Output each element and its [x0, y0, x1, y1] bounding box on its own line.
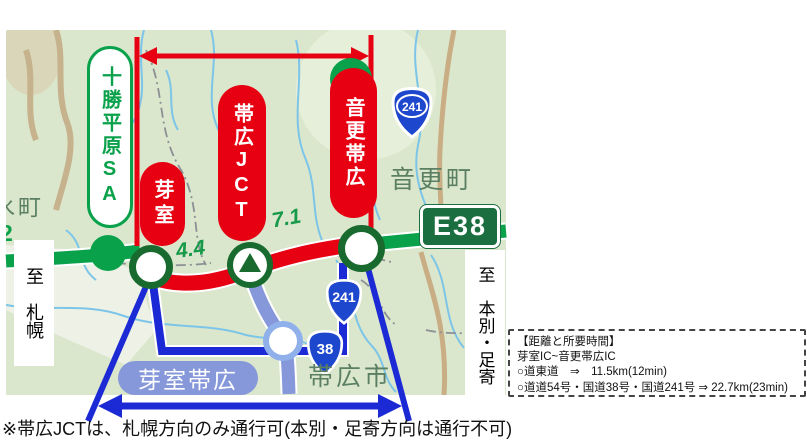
obihiro-jct-label: 帯広JCT	[228, 103, 257, 224]
route-241-large-number: 241	[402, 100, 422, 114]
memuro-ic-pill: 芽室	[140, 162, 185, 246]
e38-shield-label: E38	[433, 211, 487, 242]
info-box-title: 【距離と所要時間】	[517, 335, 797, 350]
info-box-expressway-route: ○道東道 ⇒ 11.5km(12min)	[517, 365, 797, 380]
distance-time-info-box: 【距離と所要時間】 芽室IC~音更帯広IC ○道東道 ⇒ 11.5km(12mi…	[508, 329, 806, 397]
route-241-shield-large: 241	[391, 87, 433, 139]
direction-honbetsu-ashoro-label: 至 本別・足寄	[473, 266, 498, 385]
obihiro-hiroo-ic-marker-icon	[263, 321, 303, 361]
otofuke-obihiro-ic-pill: 音更帯広	[330, 68, 377, 218]
e38-expressway-shield: E38	[420, 205, 500, 248]
otofuke-obihiro-ic-label: 音更帯広	[339, 97, 368, 189]
memuro-obihiro-area-pill: 芽室帯広	[118, 361, 258, 395]
route-241-shield-small: 241	[324, 279, 364, 325]
obihiro-jct-marker-icon	[227, 242, 273, 288]
tokachi-heigen-sa-label: 十勝平原SA	[96, 66, 125, 208]
route-241-small-number: 241	[332, 289, 356, 305]
partial-route-number: 2	[6, 220, 13, 247]
memuro-ic-label: 芽室	[148, 179, 177, 229]
distance-jct-otofuke: 7.1	[270, 205, 303, 234]
memuro-ic-marker-icon	[129, 245, 173, 289]
service-area-dot-icon	[90, 235, 126, 271]
info-box-local-route: ○道道54号・国道38号・国道241号 ⇒ 22.7km(23min)	[517, 381, 797, 396]
otofuke-obihiro-ic-marker-icon	[338, 225, 385, 272]
direction-box-sapporo: 至 札幌	[14, 240, 54, 366]
route-38-number: 38	[317, 341, 334, 358]
partial-town-label: 水町	[6, 188, 44, 222]
info-box-section: 芽室IC~音更帯広IC	[517, 350, 797, 365]
tokachi-heigen-sa-pill: 十勝平原SA	[87, 46, 133, 228]
obihiro-jct-pill: 帯広JCT	[218, 85, 266, 241]
distance-memuro-jct: 4.4	[174, 236, 206, 264]
direction-sapporo-label: 至 札幌	[21, 267, 47, 339]
memuro-obihiro-area-label: 芽室帯広	[138, 361, 238, 395]
jct-triangle-icon	[239, 253, 261, 272]
otofuke-town-label: 音更町	[390, 160, 474, 196]
direction-box-honbetsu-ashoro: 至 本別・足寄	[465, 250, 505, 400]
jct-restriction-caption: ※帯広JCTは、札幌方向のみ通行可(本別・足寄方向は通行不可)	[2, 415, 512, 441]
obihiro-city-label: 帯広市	[308, 357, 392, 393]
